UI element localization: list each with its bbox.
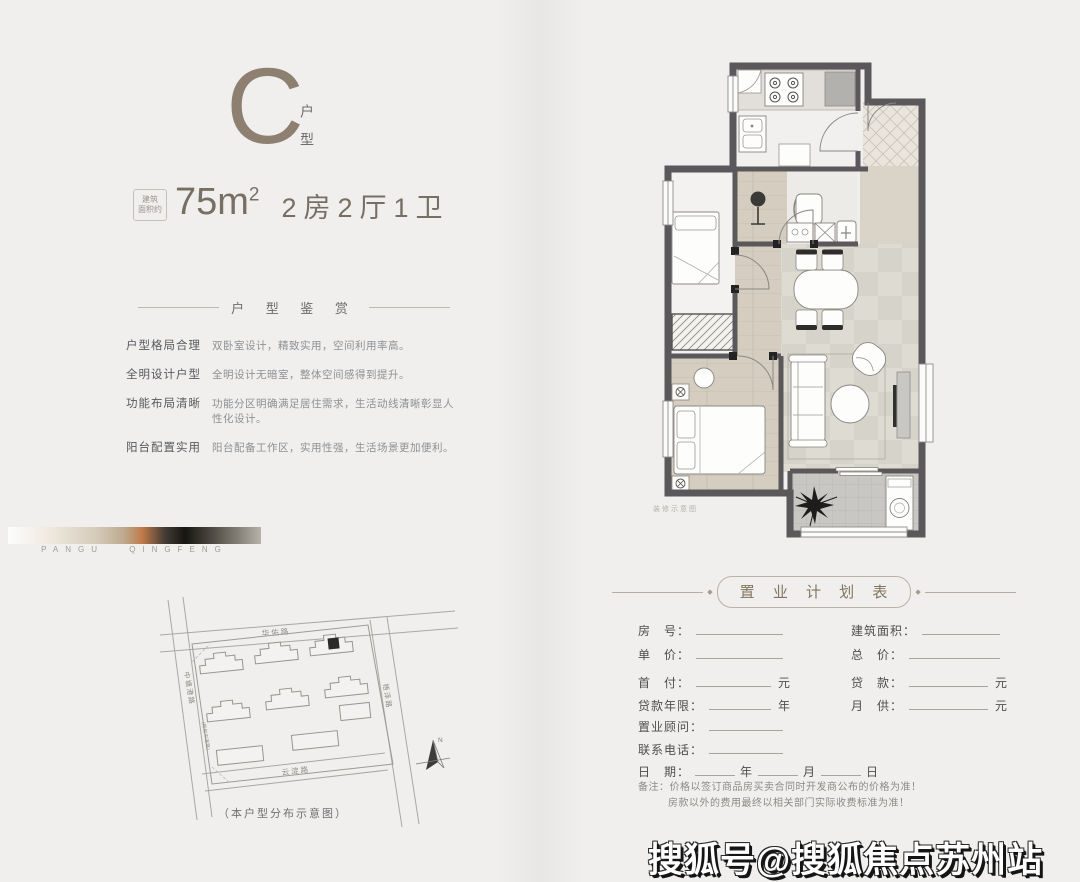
blank-line [909,674,988,687]
blank-line [922,622,1000,635]
blank-line [695,763,735,776]
purchase-form-title-row: ◆ 置 业 计 划 表 ◆ [612,576,1016,608]
north-arrow-icon: N [416,737,450,770]
dining-chair-icon [822,310,843,330]
rooms-text: 2房2厅1卫 [282,186,450,225]
item-desc: 功能分区明确满足居住需求，生活动线清晰彰显人性化设计。 [212,396,462,426]
wardrobe-icon [672,314,735,350]
vanity-icon [787,223,813,242]
washing-machine-icon [886,476,913,530]
form-row-loan: 贷 款：元 [851,674,1007,691]
appreciation-item: 阳台配置实用 阳台配备工作区，实用性强，生活场景更加便利。 [126,439,462,455]
dining-chair-icon [796,250,817,271]
bed-icon [672,212,719,284]
stove-icon [765,73,803,106]
appreciation-item: 全明设计户型 全明设计无暗室，整体空间感得到提升。 [126,366,462,382]
item-label: 户型格局合理 [126,337,212,353]
brand-strip-text: PANGU QINGFENG [8,545,261,554]
brand-strip-image [8,527,261,544]
unit-area-row: 建筑 面积约 75m2 2房2厅1卫 [133,182,450,225]
unit-location-marker [328,637,340,649]
stool-icon [694,368,714,388]
item-label: 阳台配置实用 [126,439,212,455]
form-row-consultant: 置业顾问： [638,718,790,735]
road-line [387,617,419,824]
title-rule-right [925,592,1016,593]
item-desc: 阳台配备工作区，实用性强，生活场景更加便利。 [212,440,454,455]
sofa-icon [789,355,827,447]
coffee-table-icon [831,385,869,423]
form-row-phone: 联系电话： [638,741,790,758]
title-dot-right: ◆ [915,588,920,596]
road-label-top: 华佑路 [261,626,290,638]
tv-cabinet-icon [897,372,910,438]
blank-line [709,741,783,754]
area-note-box: 建筑 面积约 [133,189,167,221]
item-label: 全明设计户型 [126,366,212,382]
title-dot-left: ◆ [707,588,712,596]
appreciation-list: 户型格局合理 双卧室设计，精致实用，空间利用率高。 全明设计户型 全明设计无暗室… [126,337,462,455]
form-row-room-number: 房 号： [638,622,790,639]
note-line: 房款以外的费用最终以相关部门实际收费标准为准！ [638,796,922,812]
form-row-built-area: 建筑面积： [851,622,1007,639]
floor-plan-caption: 装修示意图 [653,504,698,514]
blank-line [709,697,771,710]
form-row-unit-price: 单 价： [638,646,790,663]
bed-icon [674,406,765,474]
floor-plan [638,56,940,548]
appreciation-item: 户型格局合理 双卧室设计，精致实用，空间利用率高。 [126,337,462,353]
blank-line [696,674,771,687]
hallway-floor [860,166,921,246]
road-label-bottom: 云淀路 [281,764,310,777]
form-row-loan-term: 贷款年限：年 [638,697,790,714]
item-desc: 双卧室设计，精致实用，空间利用率高。 [212,338,410,353]
basin-icon [751,192,766,207]
appreciation-section: 户 型 鉴 赏 户型格局合理 双卧室设计，精致实用，空间利用率高。 全明设计户型… [126,298,462,468]
blank-line [696,646,783,659]
site-map-caption: （本户型分布示意图） [218,805,348,821]
form-row-down-payment: 首 付：元 [638,674,790,691]
blank-line [821,763,861,776]
form-notes: 备注：价格以签订商品房买卖合同时开发商公布的价格为准！ 房款以外的费用最终以相关… [638,780,922,811]
dining-chair-icon [796,310,817,330]
blank-line [709,718,783,731]
corridor-floor [735,244,781,356]
blank-line [758,763,798,776]
area-superscript: 2 [249,184,260,205]
bathroom-wet-area [737,170,787,244]
entry-floor [863,102,921,166]
appreciation-title: 户 型 鉴 赏 [126,298,462,317]
tv-icon [893,385,897,427]
desk-chair-icon [796,194,822,224]
form-row-monthly-payment: 月 供：元 [851,697,1007,714]
site-map: N 华佑路 中塘港路 (规划中道路) 梧泽路 云淀路 [150,592,475,827]
area-value: 75m2 [175,182,260,224]
item-desc: 全明设计无暗室，整体空间感得到提升。 [212,367,410,382]
dining-chair-icon [822,250,843,271]
road-line [183,597,212,817]
note-line: 备注：价格以签订商品房买卖合同时开发商公布的价格为准！ [638,780,922,796]
building-footprints [199,632,371,765]
blank-line [696,622,783,635]
unit-type-label: 户型 [297,104,317,160]
watermark: 搜狐号@搜狐焦点苏州站 [648,832,1043,882]
form-row-date: 日 期： 年 月 日 [638,763,898,780]
blank-line [909,697,988,710]
purchase-form-title: 置 业 计 划 表 [717,576,912,608]
item-label: 功能布局清晰 [126,395,212,411]
title-rule-left [612,592,703,593]
blank-line [909,646,1000,659]
dining-table-icon [794,270,858,309]
svg-text:N: N [438,737,443,744]
brochure-page: C 户型 建筑 面积约 75m2 2房2厅1卫 户 型 鉴 赏 户型格局合理 双… [0,0,1080,882]
appreciation-item: 功能布局清晰 功能分区明确满足居住需求，生活动线清晰彰显人性化设计。 [126,395,462,426]
unit-letter: C [226,52,304,160]
form-row-total-price: 总 价： [851,646,1007,663]
fridge-icon [825,72,855,106]
